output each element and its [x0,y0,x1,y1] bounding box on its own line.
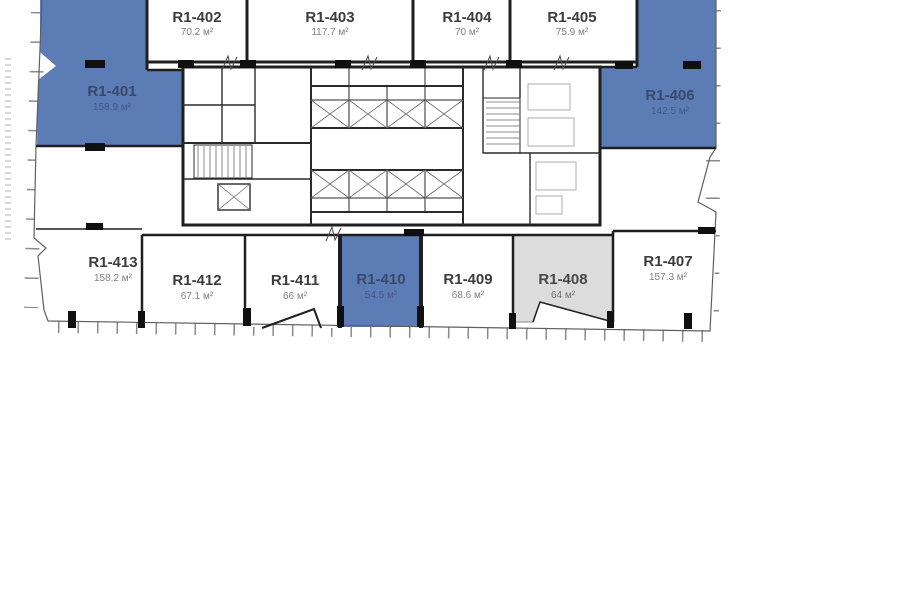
elevator-left [218,184,250,210]
stairs-right [483,98,520,153]
unit-area-r1-410: 54.5 м² [365,290,398,301]
unit-label-r1-402: R1-402 [172,9,221,26]
unit-area-r1-406: 142.5 м² [651,106,690,117]
wall-break-marks [222,56,569,241]
floor-plan-svg: R1-401 158.9 м² R1-402 70.2 м² R1-403 11… [0,0,900,604]
unit-label-r1-403: R1-403 [305,9,354,26]
unit-label-r1-413: R1-413 [88,254,137,271]
unit-area-r1-409: 68.6 м² [452,290,485,301]
unit-area-r1-401: 158.9 м² [93,102,132,113]
unit-area-r1-402: 70.2 м² [181,27,214,38]
unit-label-r1-405: R1-405 [547,9,596,26]
core-area [183,67,600,225]
unit-area-r1-411: 66 м² [283,291,308,302]
unit-area-r1-413: 158.2 м² [94,273,133,284]
unit-label-r1-412: R1-412 [172,272,221,289]
unit-label-r1-408: R1-408 [538,271,587,288]
unit-label-r1-410: R1-410 [356,271,405,288]
unit-label-r1-406: R1-406 [645,87,694,104]
unit-label-r1-404: R1-404 [442,9,492,26]
elevator-bank-bottom [311,170,463,212]
unit-label-r1-401: R1-401 [87,83,136,100]
unit-shape-r1-413[interactable] [34,148,142,322]
unit-area-r1-412: 67.1 м² [181,291,214,302]
unit-area-r1-405: 75.9 м² [556,27,589,38]
unit-label-r1-407: R1-407 [643,253,692,270]
unit-area-r1-407: 157.3 м² [649,272,688,283]
stairs-left [194,145,252,178]
floor-plan-page: R1-401 158.9 м² R1-402 70.2 м² R1-403 11… [0,0,900,604]
unit-area-r1-408: 64 м² [551,290,576,301]
elevator-bank-top [311,67,463,128]
unit-label-r1-411: R1-411 [271,272,319,289]
unit-area-r1-403: 117.7 м² [311,27,349,38]
unit-label-r1-409: R1-409 [443,271,492,288]
unit-area-r1-404: 70 м² [455,27,480,38]
